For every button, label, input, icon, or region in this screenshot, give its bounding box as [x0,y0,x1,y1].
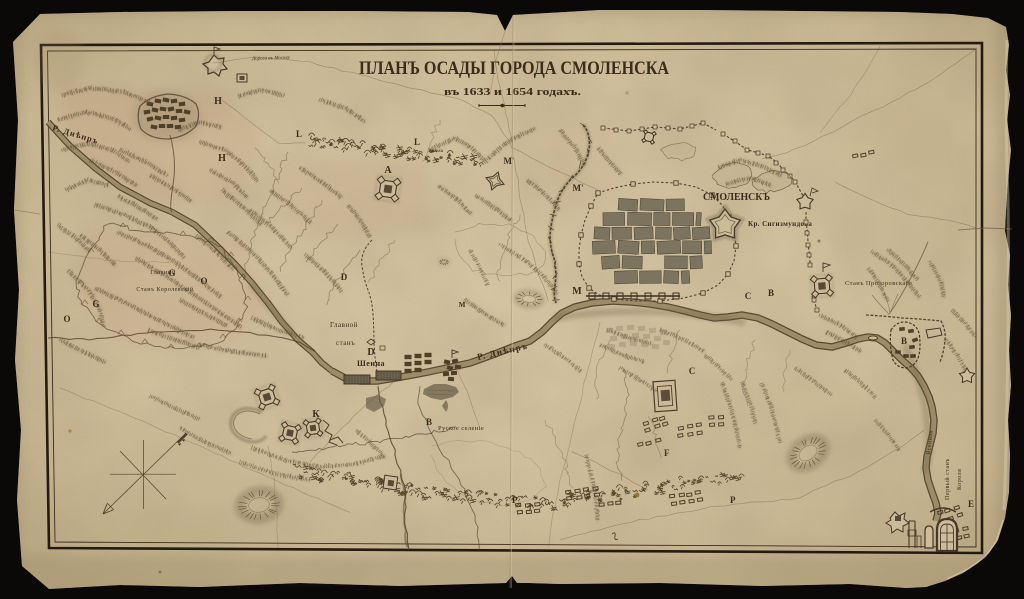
svg-text:М': М' [573,183,584,193]
svg-text:СМОЛЕНСКЪ: СМОЛЕНСКЪ [703,192,770,203]
svg-text:Кр. Сигизмундова: Кр. Сигизмундова [748,220,812,228]
svg-text:М: М [459,301,466,309]
svg-text:Первый станъ: Первый станъ [944,458,951,500]
svg-text:L: L [296,129,302,139]
svg-text:В: В [768,288,774,298]
svg-text:М': М' [504,156,515,166]
svg-text:К: К [312,409,320,420]
svg-text:В: В [426,417,432,427]
svg-text:С: С [745,291,752,301]
svg-text:Станъ Королевскій: Станъ Королевскій [136,286,193,293]
svg-text:Шеина: Шеина [357,359,385,368]
svg-text:L: L [414,137,420,147]
svg-text:Н: Н [214,96,222,107]
svg-text:станъ: станъ [336,339,355,347]
svg-text:D: D [341,272,348,282]
svg-text:А: А [384,165,392,176]
svg-text:G: G [92,299,99,309]
svg-text:D: D [367,347,374,358]
svg-text:В: В [901,336,907,346]
svg-text:Засѣки: Засѣки [428,149,444,154]
svg-text:О: О [63,314,70,324]
svg-text:Главный: Главный [150,269,176,276]
svg-text:Короля: Короля [957,469,963,490]
svg-text:М: М [572,286,582,297]
svg-text:О: О [200,276,207,286]
svg-text:Е: Е [968,499,974,509]
svg-text:Н: Н [218,153,226,164]
svg-text:Главной: Главной [330,321,358,329]
